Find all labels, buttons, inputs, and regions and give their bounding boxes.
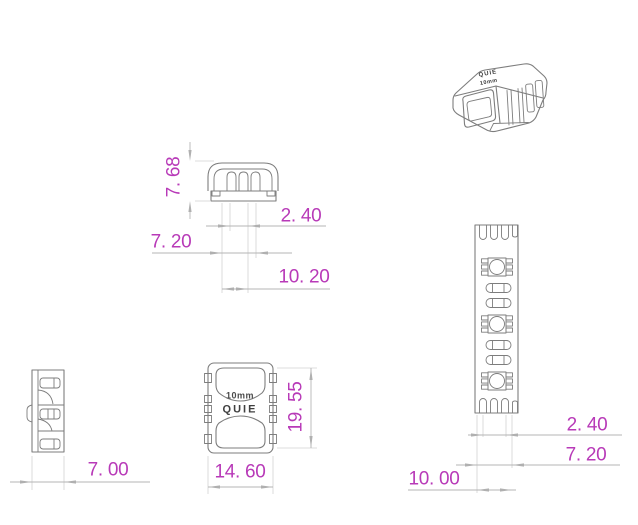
side-clip-bump bbox=[27, 405, 32, 422]
side-view-drawing bbox=[27, 370, 64, 452]
iso-view-drawing bbox=[453, 64, 547, 132]
dim-strip-pad-span-label: 7. 20 bbox=[566, 446, 607, 465]
iso-top-front-ridge bbox=[455, 86, 496, 96]
front-pin-arches bbox=[227, 172, 260, 191]
side-fillet-top bbox=[38, 390, 53, 404]
strip-view-drawing bbox=[475, 225, 518, 413]
dim-front-outer-label: 10. 20 bbox=[278, 268, 329, 287]
strip-led-2 bbox=[482, 315, 513, 333]
strip-led-3 bbox=[482, 372, 513, 390]
side-fillet-bottom bbox=[38, 419, 52, 431]
top-cavity-lower bbox=[216, 416, 265, 448]
strip-resistor-1 bbox=[486, 284, 511, 293]
dim-strip-width-label: 10. 00 bbox=[408, 470, 459, 489]
front-dome-outer bbox=[208, 163, 278, 191]
iso-corner-edge bbox=[496, 86, 500, 123]
drawing-linework bbox=[0, 0, 638, 525]
top-view-size-label: 10mm bbox=[226, 392, 254, 401]
technical-drawing-canvas: 7. 68 2. 40 7. 20 10. 20 7. 00 14. 60 19… bbox=[0, 0, 638, 525]
dim-front-mid-label: 7. 20 bbox=[151, 233, 192, 252]
strip-resistor-2 bbox=[486, 299, 511, 308]
dim-top-width-label: 14. 60 bbox=[214, 463, 265, 482]
side-extension-lines bbox=[32, 456, 64, 490]
front-base-notch-right bbox=[267, 191, 275, 196]
strip-resistor-3 bbox=[486, 341, 511, 350]
side-dimension-lines bbox=[10, 480, 150, 483]
strip-resistor-4 bbox=[486, 356, 511, 365]
strip-extension-lines bbox=[477, 415, 512, 493]
strip-solder-pads-bottom bbox=[480, 399, 518, 414]
front-base-notch-left bbox=[212, 191, 220, 196]
strip-solder-pads-top bbox=[480, 225, 518, 240]
front-extension-lines bbox=[195, 161, 256, 293]
strip-led-1 bbox=[482, 258, 513, 276]
iso-side-grooves bbox=[507, 88, 524, 125]
top-view-brand-logo: QUIE bbox=[223, 405, 258, 416]
dim-side-width-label: 7. 00 bbox=[88, 461, 129, 480]
iso-front-recess-inner bbox=[467, 97, 492, 121]
dim-front-inner-label: 2. 40 bbox=[281, 207, 322, 226]
front-base bbox=[211, 191, 276, 201]
dim-strip-pad-gap-label: 2. 40 bbox=[567, 416, 608, 435]
dim-top-length-label: 19. 55 bbox=[287, 381, 306, 432]
dim-front-height-label: 7. 68 bbox=[165, 157, 184, 198]
side-slots bbox=[40, 378, 60, 449]
front-view-drawing bbox=[208, 163, 278, 201]
